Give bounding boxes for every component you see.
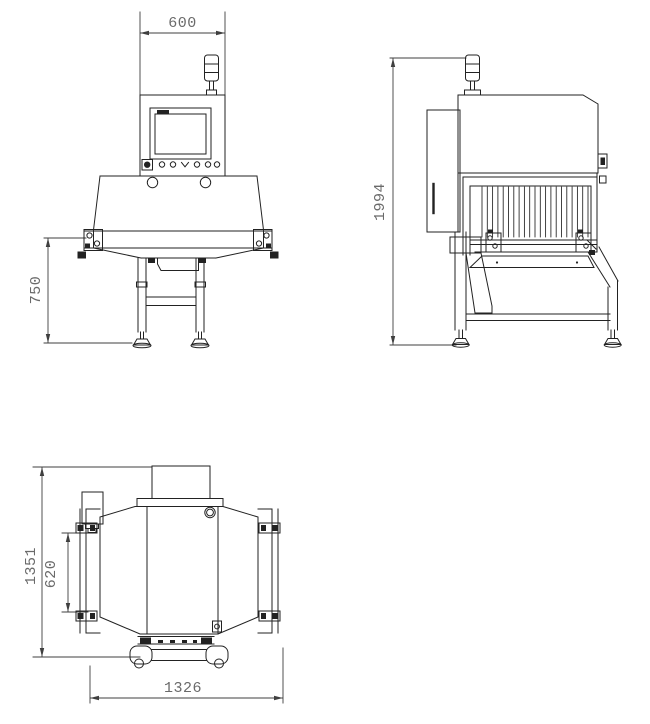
- conveyor-roller-right: [254, 230, 279, 259]
- under-tray: [148, 258, 206, 271]
- control-button: [214, 162, 219, 167]
- arrow-up-icon: [391, 58, 395, 67]
- dimension-belt-width: 620: [43, 533, 88, 612]
- slant-leg: [588, 247, 618, 330]
- dim-label-1994: 1994: [372, 183, 389, 221]
- arrow-up-icon: [66, 533, 70, 542]
- rear-cabinet-top: [152, 466, 210, 499]
- control-button: [170, 162, 175, 167]
- machine-body-plan: [100, 507, 258, 635]
- arrow-down-icon: [66, 603, 70, 612]
- engineering-drawing: 600 750: [0, 0, 650, 724]
- conveyor-side: [470, 230, 597, 256]
- key-switch-icon: [182, 163, 189, 167]
- control-button: [159, 162, 164, 167]
- adjustable-foot: [191, 332, 209, 348]
- adjustable-foot: [452, 330, 469, 347]
- belt-tensioner-left: [486, 230, 501, 253]
- arrow-right-icon: [216, 31, 225, 35]
- tower-light-side: [465, 55, 481, 95]
- hinge: [600, 176, 607, 183]
- lower-frame-side: [450, 232, 621, 347]
- shielding-curtains: [482, 187, 588, 237]
- monitor-screen: [155, 114, 206, 154]
- conveyor-roller-left: [78, 230, 103, 259]
- dimension-overall-length: 1326: [90, 648, 283, 703]
- conveyor-rail-left: [76, 509, 100, 633]
- side-view: 1994: [372, 55, 621, 347]
- bottom-panel: [470, 256, 594, 268]
- power-icon: [144, 162, 150, 168]
- dimension-overall-height: 1994: [372, 58, 466, 345]
- cabinet-side: [458, 95, 607, 255]
- dim-label-1351: 1351: [23, 547, 40, 585]
- support-column: [466, 253, 492, 313]
- arrow-down-icon: [391, 336, 395, 345]
- arrow-left-icon: [90, 696, 99, 700]
- conveyor-front: [78, 230, 279, 259]
- top-face-strip: [137, 499, 223, 507]
- body-knob: [200, 177, 210, 187]
- foot-pad: [130, 646, 152, 664]
- monitor-label: [157, 110, 169, 114]
- door-seams: [147, 507, 218, 635]
- arrow-up-icon: [46, 238, 50, 247]
- arrow-down-icon: [40, 648, 44, 657]
- adjustable-foot: [133, 332, 151, 348]
- dim-label-1326: 1326: [164, 680, 202, 697]
- control-button: [194, 162, 199, 167]
- arrow-right-icon: [274, 696, 283, 700]
- tower-light-front: [205, 55, 219, 95]
- machine-body-front: [94, 176, 264, 258]
- belt-tensioner-right: [576, 230, 596, 256]
- control-panel: [142, 160, 220, 171]
- front-view: 600 750: [28, 12, 279, 348]
- arrow-down-icon: [46, 334, 50, 343]
- conveyor-rail-right: [258, 509, 280, 633]
- front-bar-plan: [138, 637, 214, 645]
- plan-view: 1351 620 1326: [23, 466, 283, 703]
- arrow-left-icon: [140, 31, 149, 35]
- stand-legs-front: [133, 258, 209, 348]
- monitor-bezel: [150, 108, 211, 159]
- control-button: [205, 162, 210, 167]
- dim-label-600: 600: [168, 15, 197, 32]
- body-knob: [147, 177, 157, 187]
- drawing-sheet: 600 750: [0, 0, 650, 724]
- feet-plan: [130, 646, 228, 668]
- dimension-head-width: 600: [140, 12, 225, 95]
- dim-label-620: 620: [43, 560, 60, 589]
- dim-label-750: 750: [28, 276, 45, 305]
- monitor-housing-side: [427, 110, 460, 232]
- monitor: [150, 108, 211, 159]
- adjustable-foot: [604, 330, 621, 347]
- door-latch: [213, 621, 222, 632]
- arrow-up-icon: [40, 467, 44, 476]
- foot-pad: [206, 646, 228, 664]
